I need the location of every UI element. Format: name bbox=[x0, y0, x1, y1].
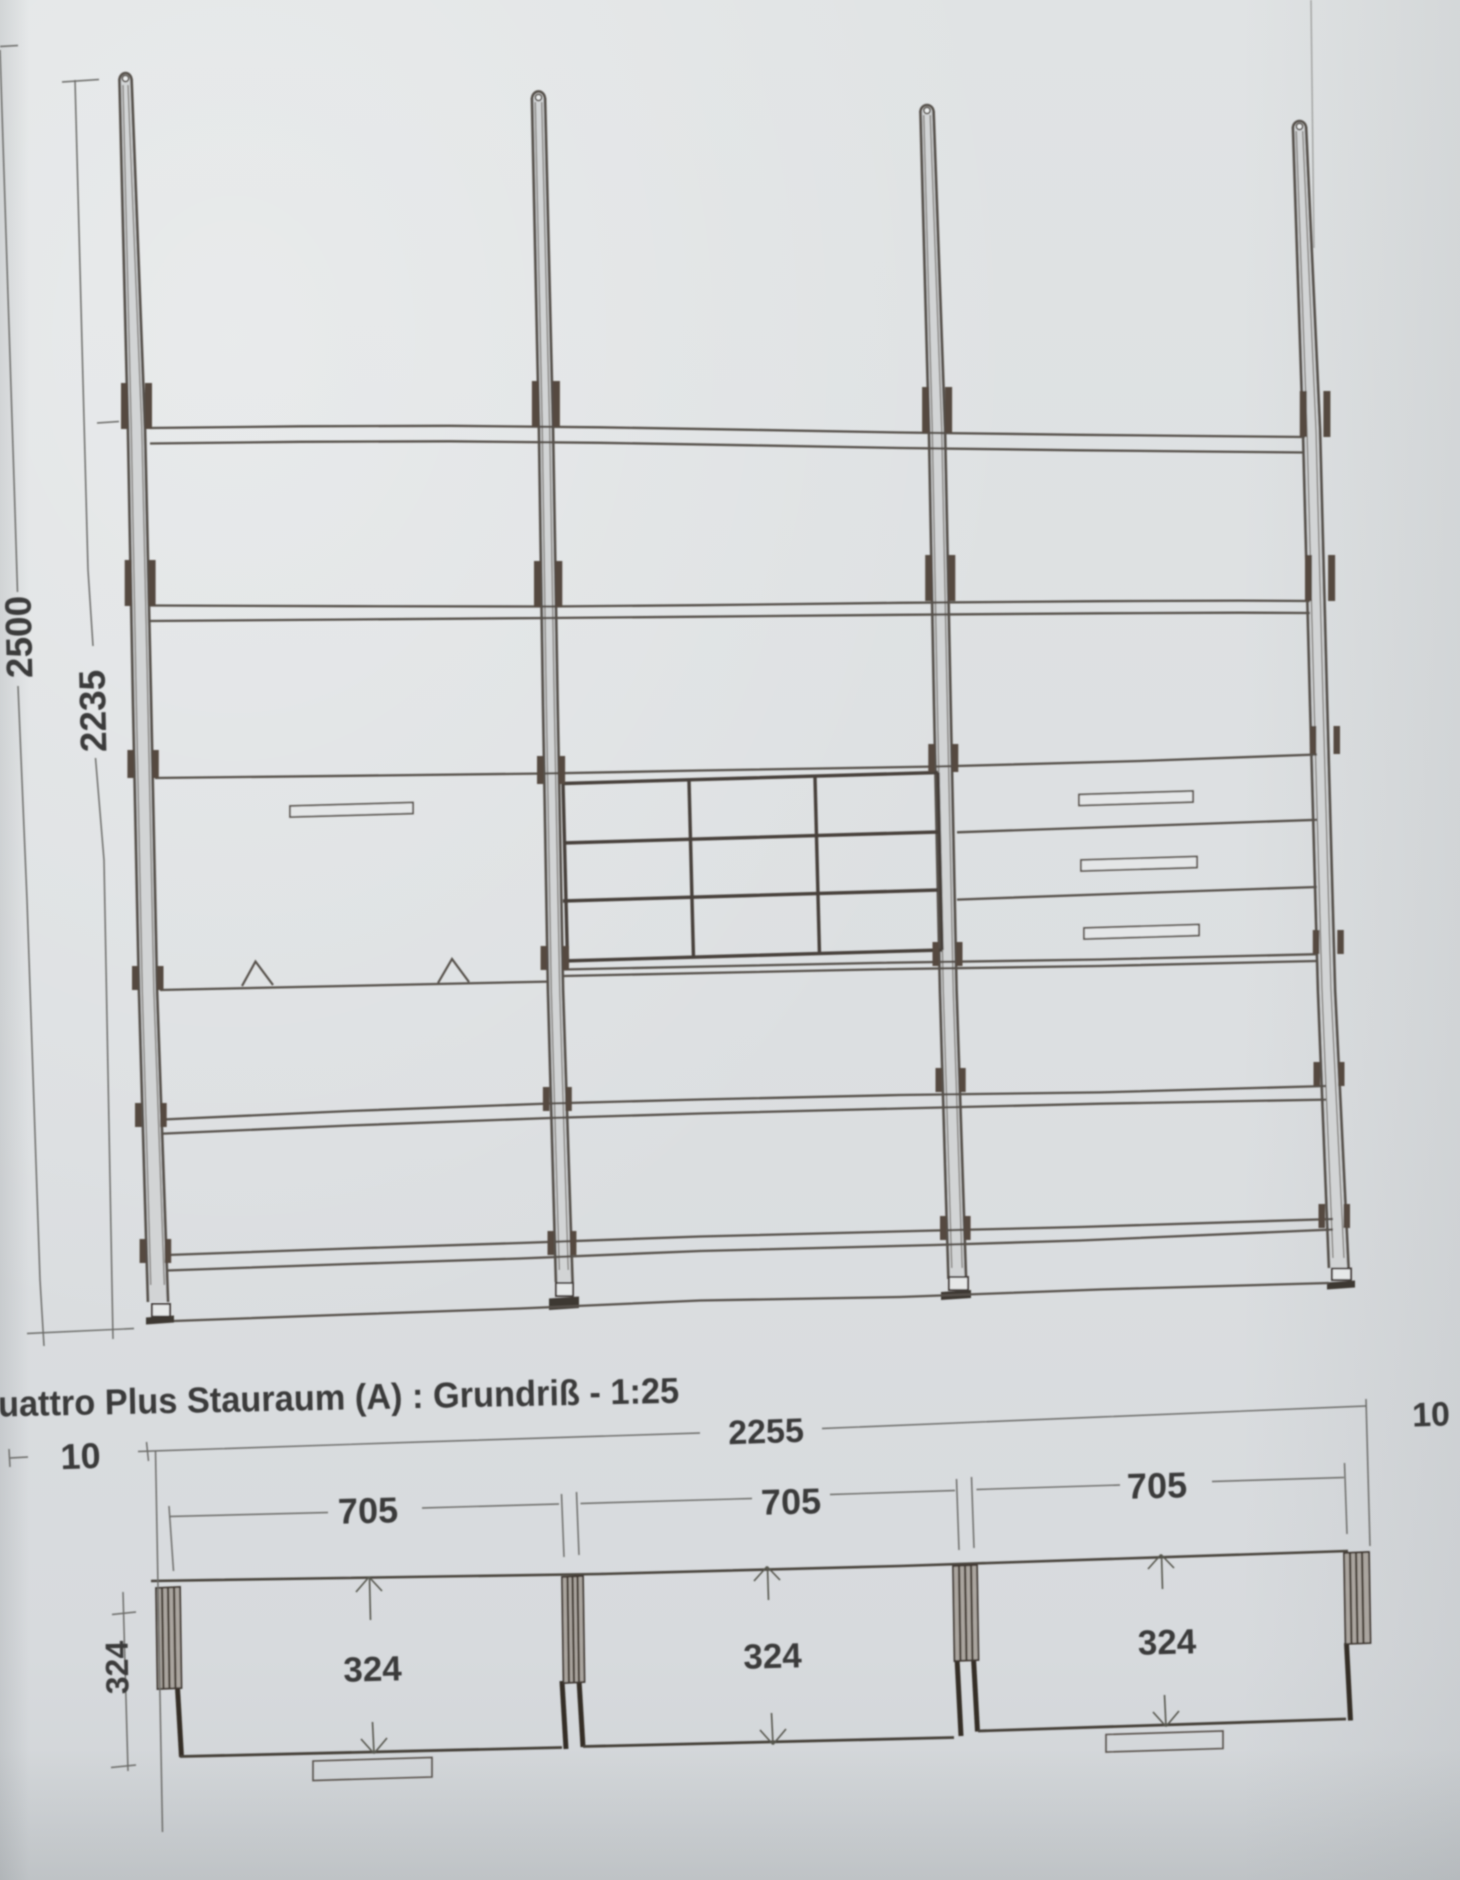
svg-text:10: 10 bbox=[60, 1435, 101, 1477]
svg-text:10: 10 bbox=[1411, 1395, 1450, 1434]
svg-text:705: 705 bbox=[1126, 1464, 1187, 1507]
svg-text:324: 324 bbox=[743, 1636, 803, 1677]
svg-text:705: 705 bbox=[337, 1489, 398, 1532]
svg-text:324: 324 bbox=[343, 1649, 403, 1690]
svg-text:2235: 2235 bbox=[72, 669, 115, 752]
svg-text:705: 705 bbox=[760, 1480, 821, 1523]
svg-text:324: 324 bbox=[99, 1640, 136, 1694]
svg-text:2255: 2255 bbox=[728, 1412, 805, 1453]
svg-text:2500: 2500 bbox=[0, 595, 40, 678]
svg-text:324: 324 bbox=[1137, 1622, 1197, 1663]
